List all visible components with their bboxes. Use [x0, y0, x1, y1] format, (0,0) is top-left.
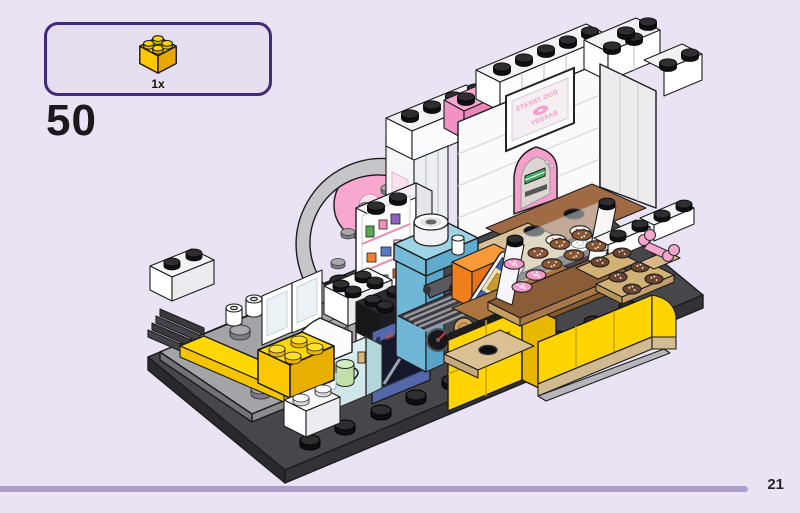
white-brick-back-left — [150, 249, 214, 301]
part-thumbnail-yellow-brick-2x2 — [131, 28, 185, 76]
footer-rule — [0, 486, 748, 492]
parts-callout: 1x — [44, 22, 272, 96]
page-number: 21 — [767, 476, 784, 493]
instruction-page: 1x 50 — [0, 0, 800, 513]
step-number: 50 — [46, 96, 97, 146]
part-quantity: 1x — [151, 77, 164, 91]
